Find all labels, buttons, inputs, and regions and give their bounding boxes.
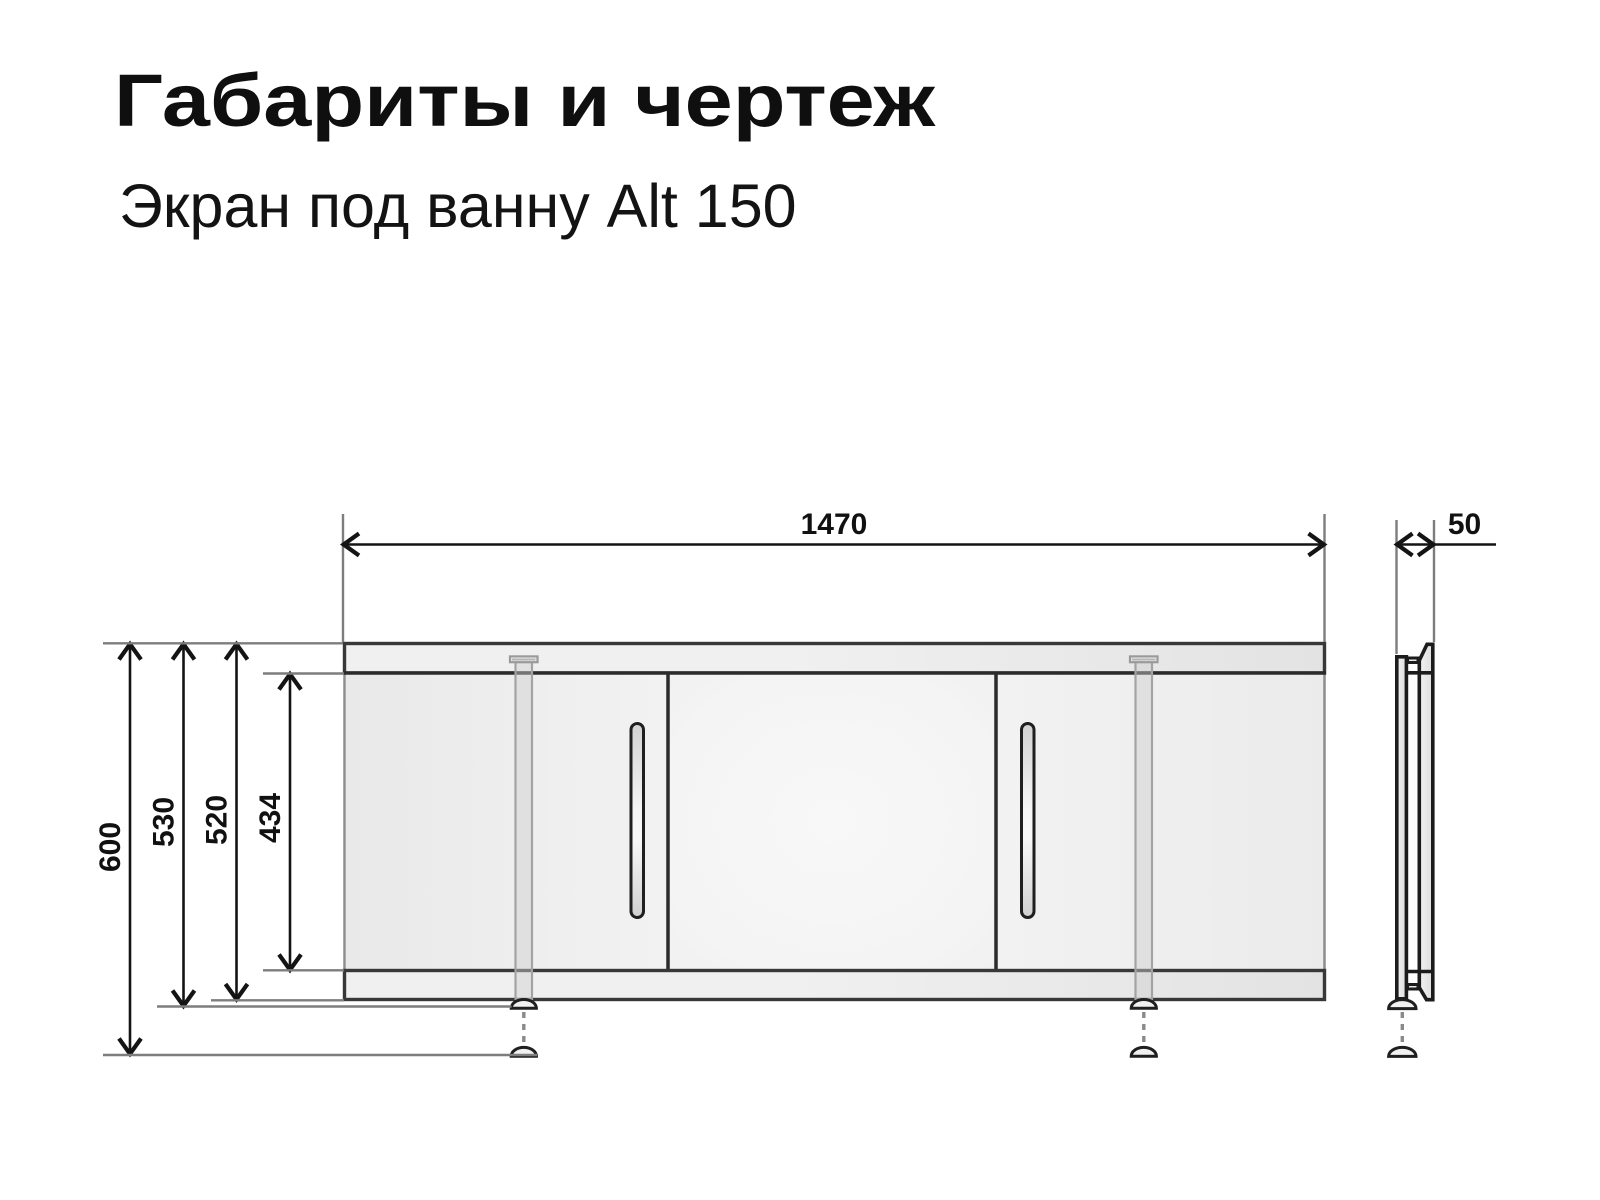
svg-text:50: 50 xyxy=(1448,508,1481,541)
svg-text:1470: 1470 xyxy=(801,508,868,541)
svg-text:600: 600 xyxy=(94,822,127,872)
svg-text:Экран под ванну Alt 150: Экран под ванну Alt 150 xyxy=(119,172,797,240)
svg-text:434: 434 xyxy=(254,793,287,843)
svg-text:530: 530 xyxy=(148,797,181,847)
svg-text:520: 520 xyxy=(201,795,234,845)
svg-text:Габариты и чертеж: Габариты и чертеж xyxy=(114,60,936,143)
